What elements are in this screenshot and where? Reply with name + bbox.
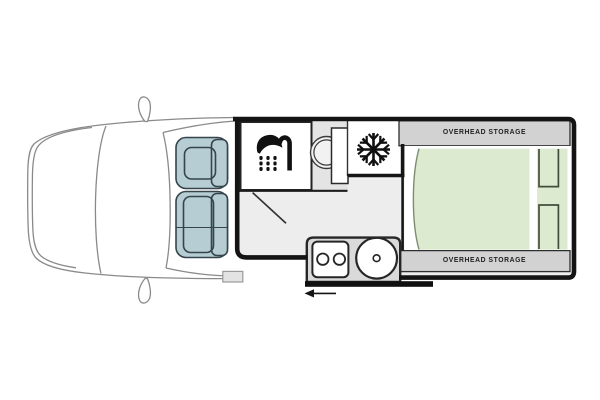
entry-arrow — [305, 289, 337, 297]
toilet-cistern — [332, 128, 349, 184]
shower-room — [241, 122, 312, 190]
sink-drain — [373, 255, 380, 262]
exterior-cutout — [239, 260, 307, 279]
cab-seats — [176, 138, 228, 258]
overhead-storage-front-bar — [399, 121, 570, 146]
floorplan-canvas: OVERHEAD STORAGE OVERHEAD STORAGE — [0, 0, 600, 400]
floorplan-svg — [0, 0, 600, 400]
cab-bulkhead-line — [163, 133, 170, 269]
kitchen-unit — [307, 238, 400, 282]
overhead-storage-rear-bar — [399, 251, 570, 272]
stove-burner-left — [317, 254, 328, 265]
bed-pillow-bottom — [539, 205, 558, 249]
bed — [403, 146, 572, 250]
driver-seat-backrest — [212, 140, 228, 187]
entry-step — [305, 281, 433, 287]
bed-pillow-top — [539, 149, 558, 187]
body-sill-stub — [223, 271, 243, 282]
stove-burner-right — [334, 254, 345, 265]
bed-mattress — [413, 149, 529, 250]
side-mirror-bottom — [139, 279, 151, 304]
cab-bumper-inner-line — [32, 128, 92, 268]
cab-roof-line-top — [163, 121, 235, 133]
arrow-left-head — [305, 289, 315, 297]
cab-windshield-line — [95, 126, 106, 274]
side-mirror-top — [139, 97, 151, 122]
